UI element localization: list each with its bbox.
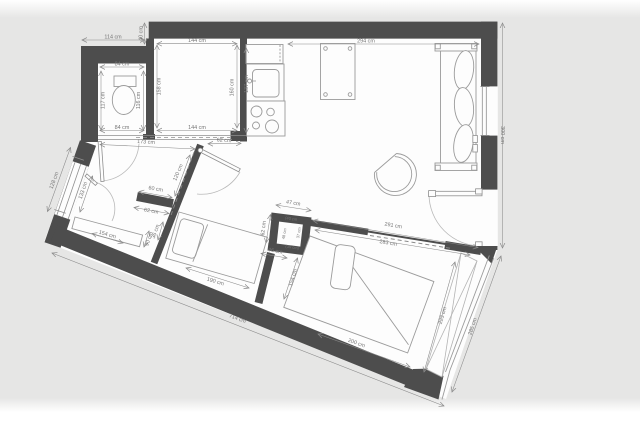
svg-text:173 cm: 173 cm xyxy=(137,139,155,146)
svg-text:84 cm: 84 cm xyxy=(115,125,130,131)
svg-text:160 cm: 160 cm xyxy=(230,78,236,96)
svg-text:84 cm: 84 cm xyxy=(115,62,130,68)
svg-text:114 cm: 114 cm xyxy=(104,35,122,41)
svg-text:62 cm: 62 cm xyxy=(217,137,232,144)
svg-text:294 cm: 294 cm xyxy=(357,39,375,45)
svg-text:144 cm: 144 cm xyxy=(188,125,206,131)
svg-text:40 cm: 40 cm xyxy=(139,26,145,41)
svg-text:158 cm: 158 cm xyxy=(157,77,163,95)
svg-text:144 cm: 144 cm xyxy=(188,38,206,44)
svg-text:137 cm: 137 cm xyxy=(244,75,250,93)
svg-text:116 cm: 116 cm xyxy=(136,91,142,109)
svg-text:117 cm: 117 cm xyxy=(101,91,107,109)
svg-text:300 cm: 300 cm xyxy=(499,126,505,144)
